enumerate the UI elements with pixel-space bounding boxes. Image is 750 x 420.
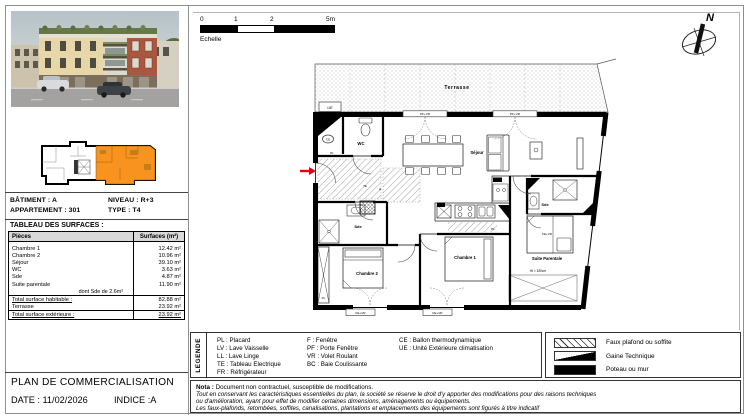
separator	[5, 219, 188, 220]
svg-text:Suite Parentale: Suite Parentale	[532, 256, 563, 261]
lv-label: LV	[496, 178, 499, 182]
ce-label: CE	[326, 137, 330, 141]
legend-column-2: F : Fenêtre PF : Porte Fenêtre VR : Vole…	[307, 333, 399, 377]
scale-bar-strip	[200, 25, 335, 33]
niveau-label: NIVEAU : R+3	[108, 197, 182, 204]
svg-text:Sde: Sde	[354, 224, 362, 229]
svg-text:FE+VR: FE+VR	[542, 232, 553, 236]
svg-text:PL: PL	[491, 227, 495, 231]
batiment-label: BÂTIMENT : A	[10, 197, 108, 204]
legend-column-1: PL : Placard LV : Lave Vaisselle LL : La…	[217, 333, 307, 377]
entrance-arrow	[300, 167, 316, 175]
surfaces-table: Pièces Surfaces (m²) Chambre 112.42 m² C…	[8, 231, 185, 320]
total-exterieure-row: Total surface extérieure :23.92 m²	[9, 311, 185, 319]
svg-text:WC: WC	[357, 141, 364, 146]
sheet-indice: INDICE :A	[114, 395, 156, 405]
symbol-poteau-mur: Poteau ou mur	[554, 363, 740, 377]
svg-text:PF+VR: PF+VR	[510, 112, 521, 116]
terrace: UE Terrasse	[315, 59, 616, 112]
svg-text:Séjour: Séjour	[470, 150, 484, 155]
north-label: N	[706, 12, 715, 24]
svg-text:pf: pf	[379, 187, 382, 191]
svg-text:Chambre 2: Chambre 2	[356, 271, 378, 276]
surfaces-header-row: Pièces Surfaces (m²)	[9, 232, 185, 242]
floor-plan: UE Terrasse	[295, 58, 625, 335]
svg-text:PL: PL	[330, 151, 334, 155]
table-row: Séjour39.10 m²	[9, 260, 185, 267]
scale-tick: 2	[270, 16, 274, 23]
scale-tick: 5m	[326, 16, 335, 23]
svg-text:Ht < 180cm: Ht < 180cm	[530, 269, 547, 273]
table-row: Chambre 112.42 m²	[9, 246, 185, 253]
table-row: Sde4.87 m²	[9, 274, 185, 281]
symbols-legend: Faux plafond ou soffite Gaine Technique …	[545, 332, 741, 378]
nota: Nota : Document non contractuel, suscept…	[190, 380, 741, 413]
svg-text:Sde: Sde	[541, 202, 549, 207]
separator	[5, 372, 188, 373]
triangle-swatch-icon	[554, 351, 596, 361]
scale-label: Echelle	[200, 36, 221, 43]
type-label: TYPE : T4	[108, 207, 182, 214]
total-habitable-row: Total surface habitable :82.88 m²	[9, 296, 185, 304]
apartment-info: BÂTIMENT : A NIVEAU : R+3 APPARTEMENT : …	[10, 197, 182, 214]
terrace-label: Terrasse	[444, 85, 469, 91]
svg-text:Chambre 1: Chambre 1	[454, 255, 476, 260]
symbol-gaine-technique: Gaine Technique	[554, 350, 740, 364]
svg-text:TE: TE	[363, 184, 367, 188]
legend: LEGENDE PL : Placard LV : Lave Vaisselle…	[190, 332, 542, 378]
fr-label: FR	[439, 203, 443, 207]
svg-text:FE+VR: FE+VR	[355, 311, 366, 315]
legend-column-3: CE : Ballon thermodynamique UE : Unité E…	[399, 333, 541, 377]
svg-text:PL: PL	[322, 296, 326, 300]
solid-swatch-icon	[554, 365, 596, 375]
col-surfaces: Surfaces (m²)	[134, 232, 185, 242]
svg-text:FE+VR: FE+VR	[432, 311, 443, 315]
table-row: Chambre 210.96 m²	[9, 253, 185, 260]
scale-tick: 1	[234, 16, 238, 23]
gaine-technique	[360, 201, 375, 214]
table-row: WC3.63 m²	[9, 267, 185, 274]
terrasse-row: Terrasse23.92 m²	[9, 303, 185, 311]
legend-title-cell: LEGENDE	[191, 333, 207, 377]
separator	[5, 192, 188, 193]
table-row: Suite parentale11.90 m²	[9, 281, 185, 288]
scale-bar: 0 1 2 5m Echelle	[200, 16, 345, 46]
appartement-label: APPARTEMENT : 301	[10, 207, 108, 214]
commercialisation-sheet: BÂTIMENT : A NIVEAU : R+3 APPARTEMENT : …	[0, 0, 750, 420]
nota-bold: Nota :	[196, 384, 214, 391]
sheet-date: DATE : 11/02/2026	[11, 395, 88, 405]
sheet-title: PLAN DE COMMERCIALISATION	[11, 377, 174, 388]
left-panel-divider	[188, 5, 189, 415]
symbol-faux-plafond: Faux plafond ou soffite	[554, 336, 740, 350]
key-plan	[34, 134, 164, 196]
dont-row: dont Sde de 2.6m²	[9, 288, 185, 296]
hatch-swatch-icon	[554, 338, 596, 348]
col-pieces: Pièces	[9, 232, 134, 242]
building-render	[11, 11, 179, 107]
ue-label: UE	[327, 105, 333, 110]
north-arrow-icon: N	[670, 8, 732, 64]
svg-text:PF+VR: PF+VR	[420, 112, 431, 116]
scale-tick: 0	[200, 16, 204, 23]
surfaces-table-title: TABLEAU DES SURFACES :	[10, 222, 104, 229]
